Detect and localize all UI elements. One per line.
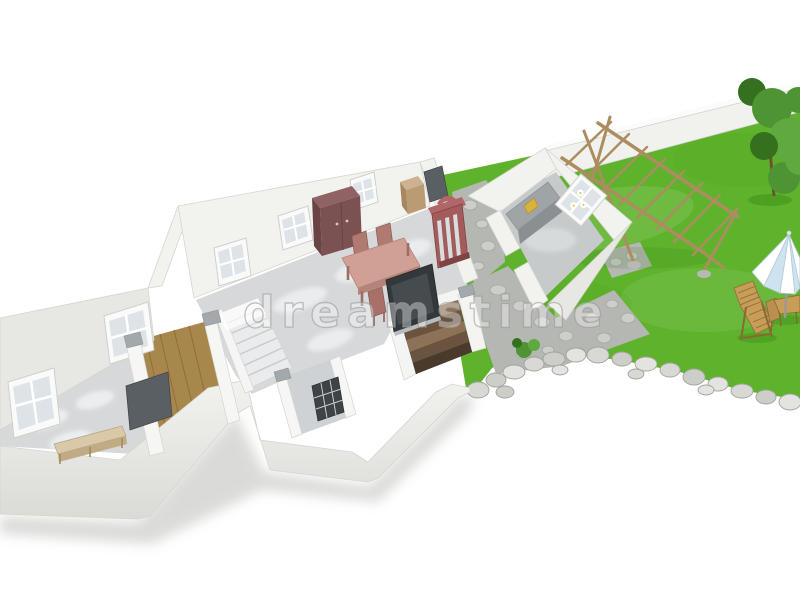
scene: dreamstime dreamstime [0, 0, 800, 600]
watermark-text: dreamstime [243, 287, 610, 338]
floor-plan-render: dreamstime dreamstime [0, 0, 800, 600]
sideboard [400, 176, 426, 214]
watermark: dreamstime dreamstime [243, 287, 610, 338]
